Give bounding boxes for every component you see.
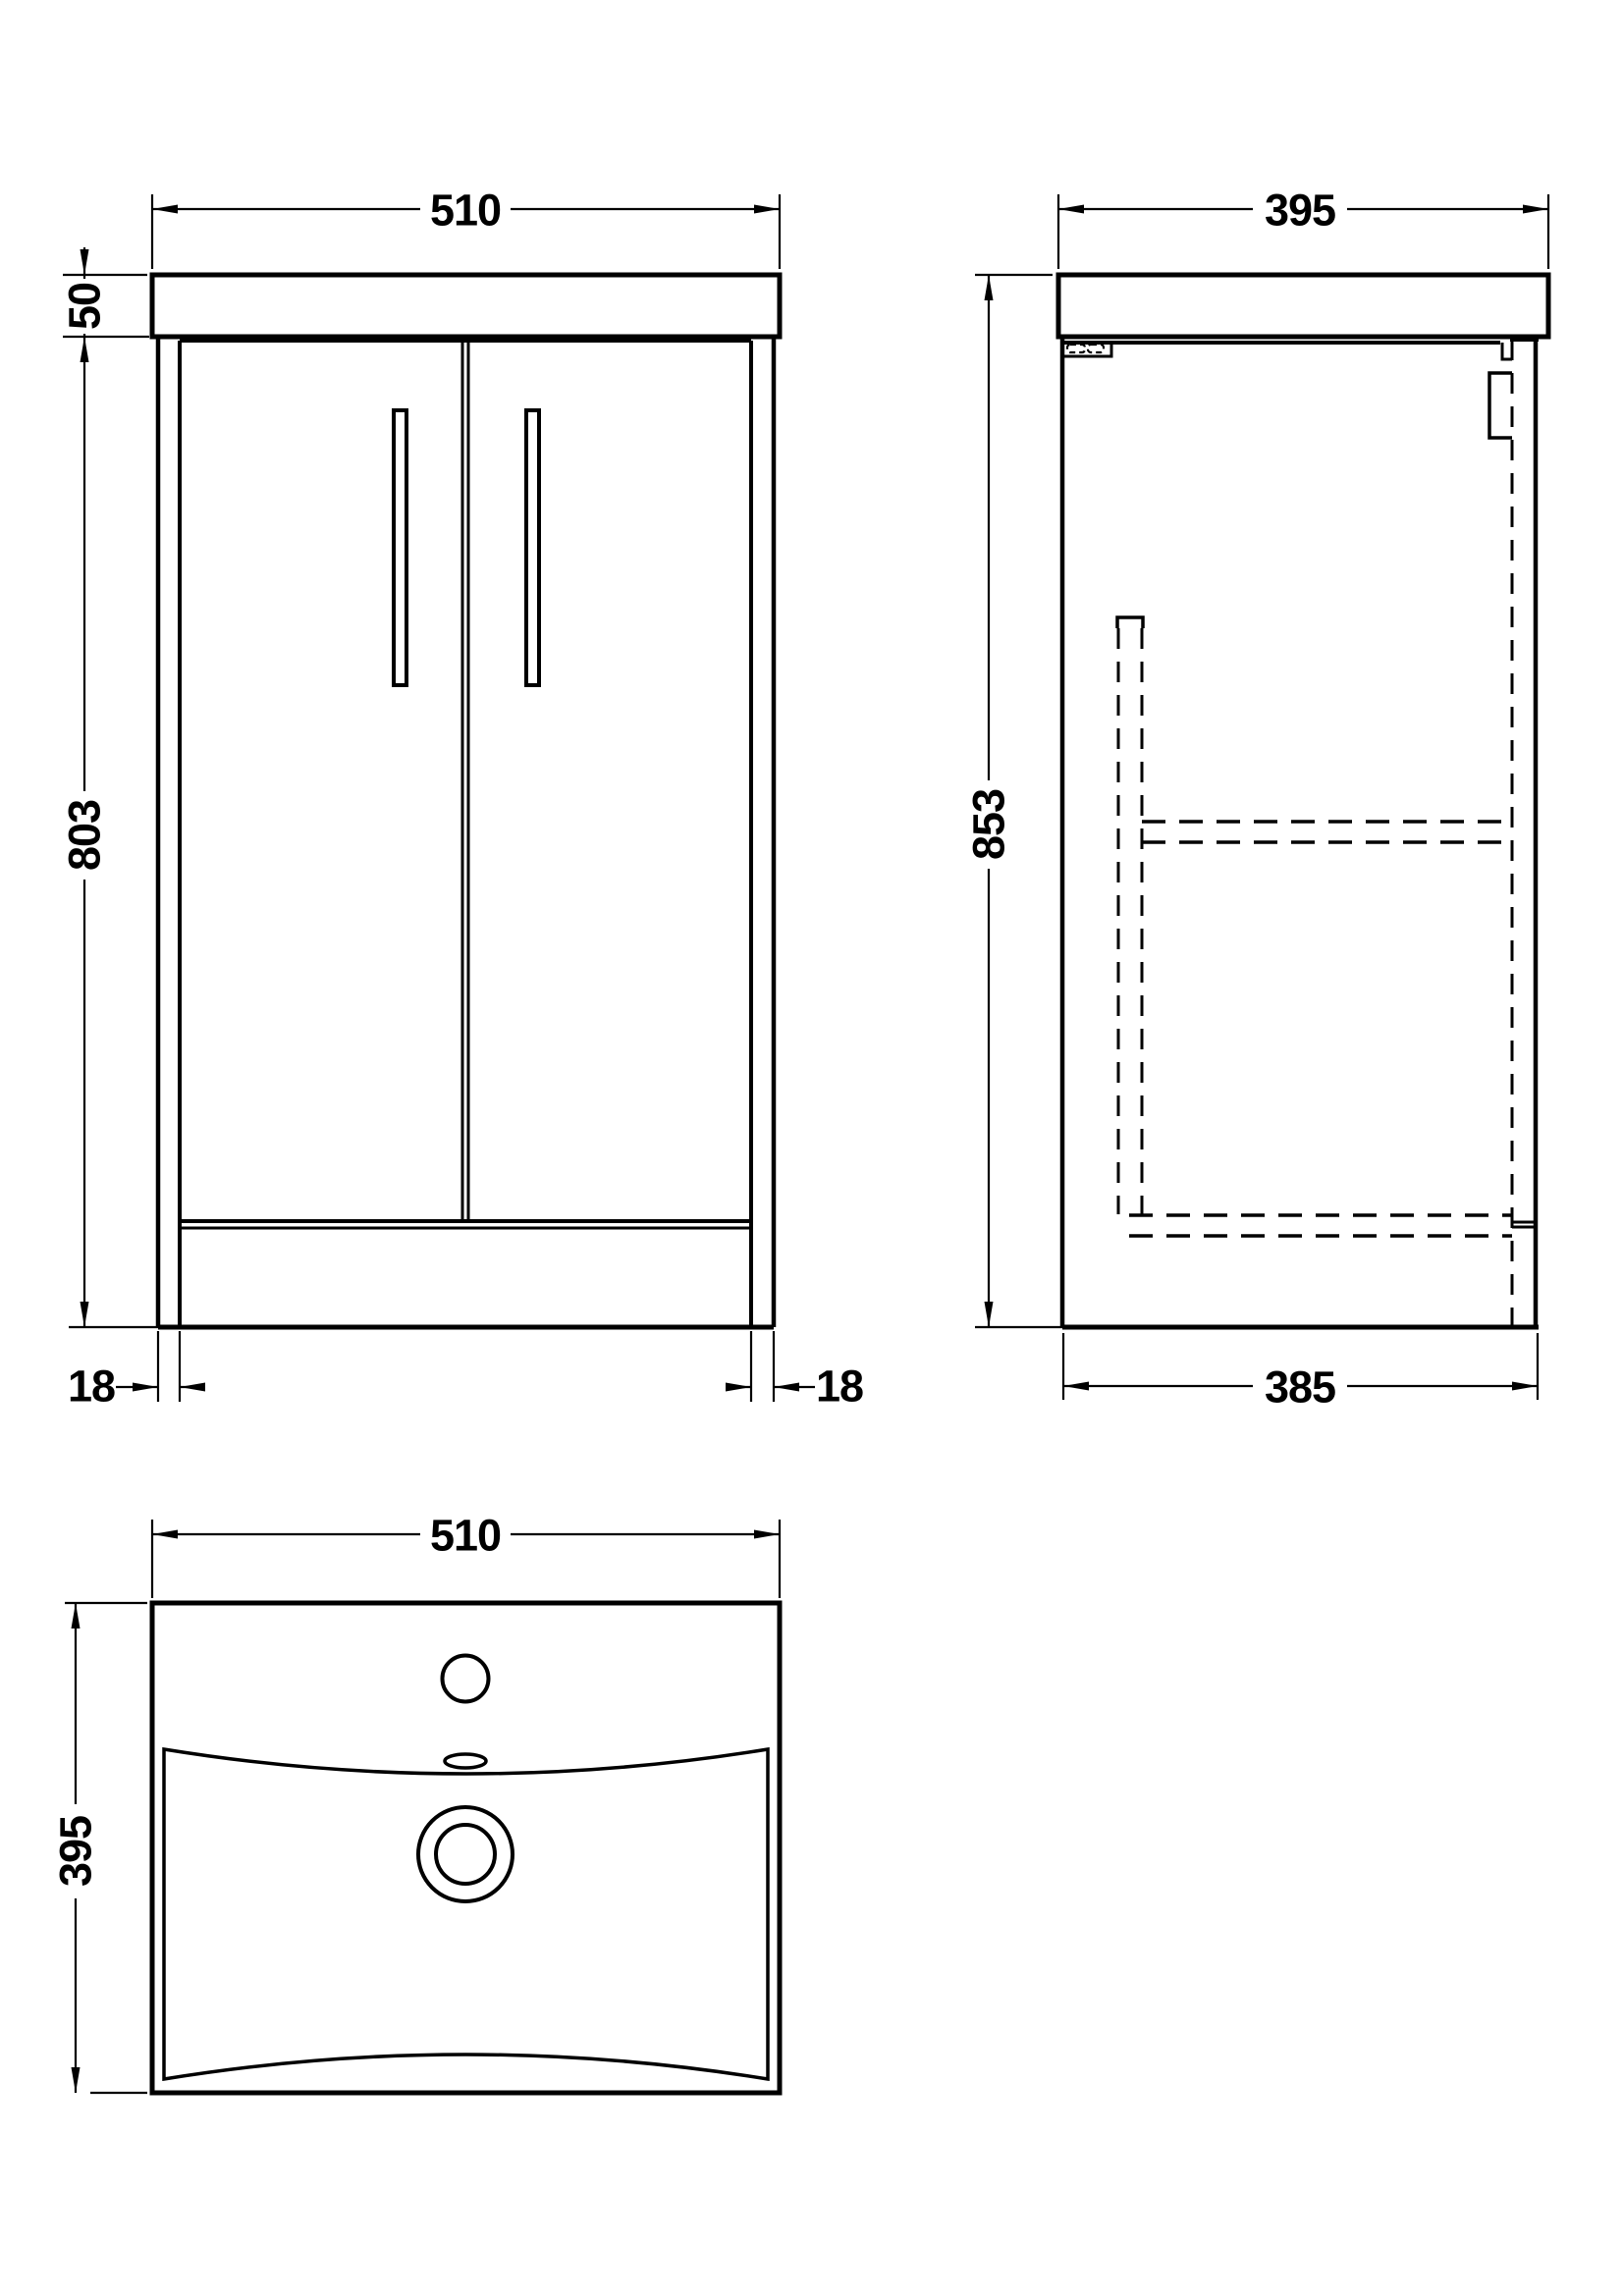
dim-left-panel-thickness: 18 <box>68 1331 205 1412</box>
dim-arrow <box>152 1530 178 1539</box>
dim-cabinet-height-label: 803 <box>60 800 110 871</box>
worktop-side <box>1058 275 1548 337</box>
dim-arrow <box>81 337 89 362</box>
dim-side-height: 853 <box>964 275 1063 1327</box>
plan-view: 510 395 <box>51 1511 781 2094</box>
dim-front-heights: 50 803 <box>60 247 159 1327</box>
door-bottom-edge <box>1512 1222 1536 1227</box>
bottom-panel-hidden-lines <box>1129 1215 1512 1236</box>
dim-plan-width: 510 <box>152 1511 780 1599</box>
dim-arrow <box>985 275 994 300</box>
hinge-arm <box>1489 373 1512 438</box>
dim-arrow <box>754 205 780 214</box>
dim-plan-depth-label: 395 <box>51 1816 101 1887</box>
dim-side-cabinet-depth-label: 385 <box>1265 1362 1335 1413</box>
dim-side-depth-label: 395 <box>1265 186 1335 236</box>
dim-left-panel-label: 18 <box>68 1362 115 1412</box>
hinge-plate-slot <box>1067 345 1085 352</box>
dim-arrow <box>180 1383 205 1392</box>
dim-arrow <box>1512 1382 1538 1391</box>
dim-arrow <box>1523 205 1548 214</box>
dim-side-depth: 395 <box>1058 186 1548 270</box>
right-door-handle <box>526 410 539 685</box>
left-door-handle <box>394 410 406 685</box>
waste-pipe-hidden-lines <box>1118 628 1142 1214</box>
dim-plan-width-label: 510 <box>430 1511 501 1561</box>
front-view: 510 50 803 18 <box>60 186 864 1412</box>
basin-outer-edge <box>152 1603 780 2093</box>
dim-arrow <box>1063 1382 1089 1391</box>
dim-arrow <box>133 1383 158 1392</box>
worktop-front <box>152 275 780 337</box>
dim-right-panel-label: 18 <box>816 1362 863 1412</box>
dim-plan-depth: 395 <box>51 1603 148 2093</box>
dim-arrow <box>152 205 178 214</box>
dim-front-width-label: 510 <box>430 186 501 236</box>
dim-arrow <box>81 1302 89 1327</box>
dim-arrow <box>754 1530 780 1539</box>
dim-arrow <box>72 1603 81 1629</box>
dim-arrow <box>1058 205 1084 214</box>
hinge-plate-slot <box>1088 345 1104 352</box>
dim-arrow <box>72 2067 81 2093</box>
shelf-hidden-lines <box>1142 822 1512 842</box>
dim-front-width: 510 <box>152 186 780 270</box>
dim-arrow <box>81 249 89 275</box>
dim-side-height-label: 853 <box>964 789 1014 860</box>
dim-arrow <box>774 1383 799 1392</box>
dim-side-cabinet-depth: 385 <box>1063 1333 1538 1413</box>
waste-pipe-cap <box>1117 617 1143 628</box>
drawing-canvas: 510 50 803 18 <box>0 0 1623 2296</box>
dim-arrow <box>985 1302 994 1327</box>
dim-right-panel-thickness: 18 <box>726 1331 863 1412</box>
dim-arrow <box>726 1383 751 1392</box>
dim-worktop-thickness-label: 50 <box>60 283 110 330</box>
technical-drawing-page: 510 50 803 18 <box>0 0 1623 2296</box>
side-view: 395 853 385 <box>964 186 1549 1413</box>
